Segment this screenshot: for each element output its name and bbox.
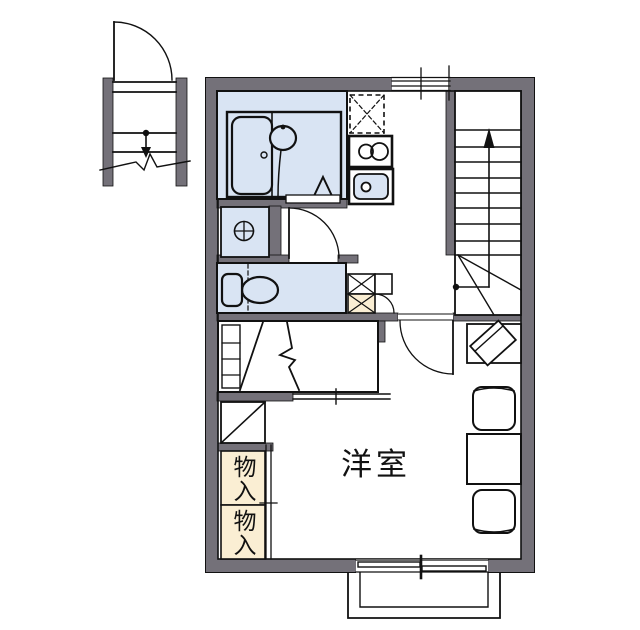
kitchen-sink-icon <box>349 169 393 204</box>
refrigerator-space-icon <box>350 95 384 133</box>
balcony <box>348 573 500 618</box>
tv-stand-icon <box>467 321 521 366</box>
toilet-room <box>217 263 346 313</box>
floor-plan-drawing <box>0 0 640 630</box>
washing-machine-pan-icon <box>221 207 269 257</box>
floor-plan: 洋室 物入 物入 <box>0 0 640 630</box>
storage-lower-label: 物入 <box>231 509 254 557</box>
furniture <box>467 321 521 533</box>
balcony-window-icon <box>356 556 488 578</box>
main-room-label: 洋室 <box>341 449 411 480</box>
bathroom <box>217 91 347 203</box>
chair-top-icon <box>473 387 515 430</box>
interior-staircase <box>453 91 521 315</box>
washroom-door-swing-icon <box>289 208 339 258</box>
bathtub-icon <box>232 117 272 194</box>
kitchen-window-icon <box>392 66 450 100</box>
storage-upper-label: 物入 <box>231 455 254 503</box>
stove-icon <box>349 136 392 167</box>
hall-storage-cabinet-icon <box>348 274 394 313</box>
dining-table-icon <box>467 434 521 484</box>
main-room-door-swing-icon <box>398 313 453 374</box>
entry-door-swing-icon <box>114 22 172 80</box>
chair-bottom-icon <box>473 490 515 533</box>
closet <box>218 321 390 404</box>
toilet-icon <box>222 274 278 306</box>
bathroom-sliding-door-icon <box>286 195 340 203</box>
kitchen <box>349 95 393 204</box>
exterior-staircase <box>100 22 190 186</box>
